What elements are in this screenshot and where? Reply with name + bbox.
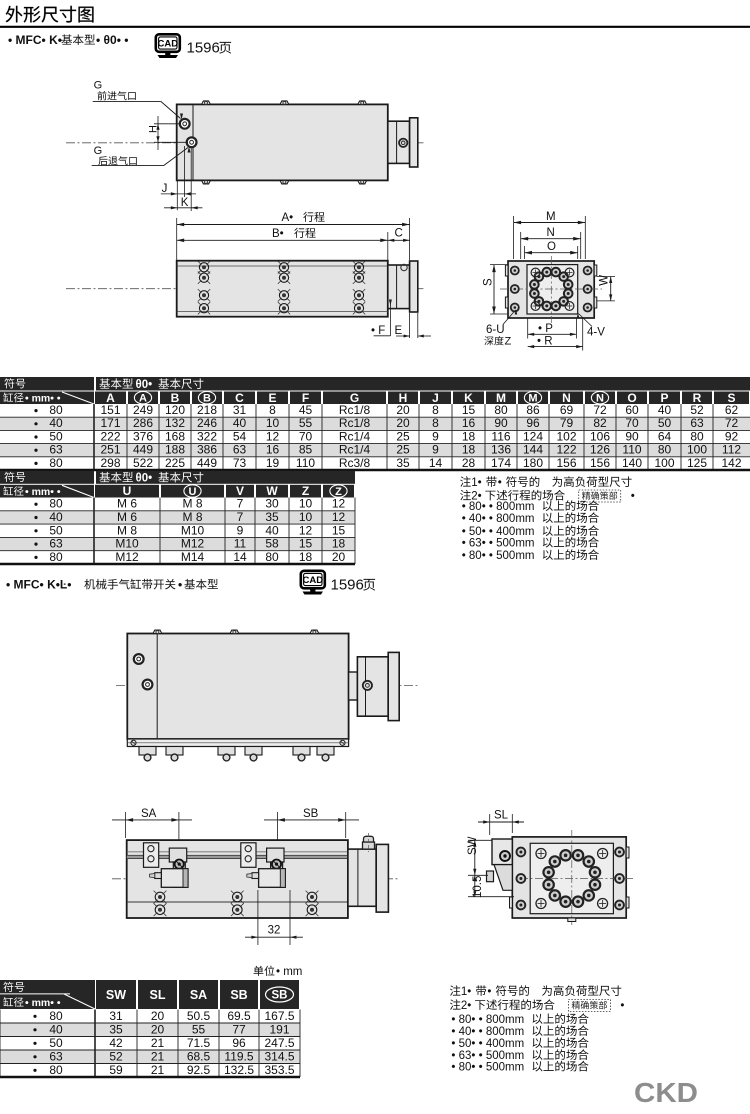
svg-text:J: J <box>162 183 168 195</box>
svg-text:• MFC• K•Ŀ•: • MFC• K•Ŀ• <box>6 578 71 592</box>
svg-text:• 80• • 800mm: • 80• • 800mm <box>451 1014 524 1026</box>
svg-text:449: 449 <box>197 456 217 470</box>
svg-text:80: 80 <box>658 443 672 457</box>
svg-text:18: 18 <box>332 537 346 551</box>
svg-text:• 50• • 400mm: • 50• • 400mm <box>451 1038 524 1050</box>
svg-text:SL: SL <box>150 988 166 1002</box>
svg-text:136: 136 <box>491 443 511 457</box>
svg-text:•: • <box>498 477 502 489</box>
svg-text:25: 25 <box>396 429 410 443</box>
svg-text:M 8: M 8 <box>117 523 137 537</box>
svg-text:20: 20 <box>151 1009 165 1023</box>
svg-text:55: 55 <box>299 416 313 430</box>
svg-text:SL: SL <box>494 810 509 822</box>
svg-text:14: 14 <box>233 550 247 564</box>
svg-text:• P: • P <box>538 323 553 335</box>
svg-text:• MFC• K•: • MFC• K• <box>8 33 62 47</box>
svg-text:64: 64 <box>658 429 672 443</box>
svg-text:102: 102 <box>556 429 576 443</box>
svg-text:132: 132 <box>165 416 185 430</box>
svg-text:• 40• • 800mm: • 40• • 800mm <box>462 513 535 525</box>
svg-text:191: 191 <box>269 1022 289 1036</box>
svg-text:92.5: 92.5 <box>187 1063 211 1077</box>
svg-text:10.5: 10.5 <box>472 876 484 898</box>
svg-text:• 40• • 800mm: • 40• • 800mm <box>451 1026 524 1038</box>
svg-text:116: 116 <box>491 429 510 443</box>
svg-text:• mm: • mm <box>276 966 302 978</box>
svg-text:B•: B• <box>272 228 284 240</box>
svg-text:• 63• • 500mm: • 63• • 500mm <box>462 538 535 550</box>
svg-text:18: 18 <box>462 429 476 443</box>
svg-text:69.5: 69.5 <box>227 1009 251 1023</box>
svg-text:8: 8 <box>269 403 276 417</box>
svg-text:M12: M12 <box>115 550 139 564</box>
svg-text:CKD: CKD <box>634 1077 698 1108</box>
svg-text:SB: SB <box>230 988 247 1002</box>
svg-text:15: 15 <box>332 523 346 537</box>
svg-text:18: 18 <box>299 550 313 564</box>
svg-text:90: 90 <box>625 429 639 443</box>
svg-text:298: 298 <box>100 456 120 470</box>
svg-text:140: 140 <box>622 456 642 470</box>
svg-text:• R: • R <box>537 336 553 348</box>
svg-text:174: 174 <box>491 456 511 470</box>
svg-text:12: 12 <box>266 429 280 443</box>
svg-text:31: 31 <box>233 403 247 417</box>
svg-text:32: 32 <box>268 925 281 937</box>
svg-text:M 6: M 6 <box>117 510 137 524</box>
svg-text:110: 110 <box>296 456 315 470</box>
svg-text:112: 112 <box>722 443 741 457</box>
svg-text:SB: SB <box>272 990 288 1002</box>
svg-text:1596: 1596 <box>331 577 364 594</box>
svg-text:Rc1/4: Rc1/4 <box>339 429 371 443</box>
svg-text:SB: SB <box>303 808 319 820</box>
svg-text:72: 72 <box>725 416 739 430</box>
svg-text:58: 58 <box>265 537 279 551</box>
svg-text:35: 35 <box>109 1022 123 1036</box>
svg-text:CAD: CAD <box>158 39 179 50</box>
svg-text:M 8: M 8 <box>182 497 202 511</box>
svg-text:286: 286 <box>133 416 153 430</box>
svg-text:96: 96 <box>232 1036 246 1050</box>
svg-text:21: 21 <box>151 1049 165 1063</box>
svg-text:12: 12 <box>299 523 313 537</box>
svg-text:50.5: 50.5 <box>187 1009 211 1023</box>
svg-text:θ0•: θ0• <box>136 473 153 485</box>
svg-text:• 80• • 500mm: • 80• • 500mm <box>451 1062 524 1074</box>
svg-text:SA: SA <box>141 808 157 820</box>
svg-text:63: 63 <box>49 537 63 551</box>
svg-text:50: 50 <box>49 429 63 443</box>
svg-text:126: 126 <box>590 443 610 457</box>
svg-text:M 8: M 8 <box>182 510 202 524</box>
svg-text:92: 92 <box>725 429 739 443</box>
svg-text:63: 63 <box>49 1049 63 1063</box>
svg-text:19: 19 <box>266 456 280 470</box>
svg-text:80: 80 <box>49 550 63 564</box>
svg-text:80: 80 <box>49 456 63 470</box>
svg-text:119.5: 119.5 <box>224 1049 253 1063</box>
svg-text:79: 79 <box>560 416 574 430</box>
svg-text:69: 69 <box>560 403 574 417</box>
svg-text:110: 110 <box>622 443 641 457</box>
svg-text:249: 249 <box>133 403 153 417</box>
svg-text:52: 52 <box>690 403 704 417</box>
svg-text:35: 35 <box>396 456 410 470</box>
svg-text:16: 16 <box>462 416 476 430</box>
svg-text:18: 18 <box>462 443 476 457</box>
svg-text:M12: M12 <box>181 537 205 551</box>
svg-text:15: 15 <box>299 537 313 551</box>
svg-text:31: 31 <box>109 1009 123 1023</box>
svg-text:353.5: 353.5 <box>264 1063 294 1077</box>
svg-text:CAD: CAD <box>303 575 324 586</box>
svg-text:θ0•: θ0• <box>136 379 153 391</box>
svg-text:62: 62 <box>725 403 739 417</box>
svg-text:12: 12 <box>332 510 346 524</box>
svg-text:120: 120 <box>165 403 185 417</box>
svg-text:A•: A• <box>282 212 294 224</box>
svg-text:20: 20 <box>396 416 410 430</box>
svg-text:247.5: 247.5 <box>264 1036 294 1050</box>
svg-text:10: 10 <box>299 497 313 511</box>
svg-text:322: 322 <box>197 429 217 443</box>
svg-text:16: 16 <box>266 443 280 457</box>
svg-text:2•: 2• <box>461 1000 471 1012</box>
svg-text:40: 40 <box>265 523 279 537</box>
svg-text:314.5: 314.5 <box>264 1049 294 1063</box>
svg-text:70: 70 <box>625 416 639 430</box>
svg-text:12: 12 <box>332 497 346 511</box>
svg-text:60: 60 <box>625 403 639 417</box>
svg-text:70: 70 <box>299 429 313 443</box>
svg-text:•: • <box>487 986 491 998</box>
svg-text:S: S <box>483 278 495 286</box>
svg-text:45: 45 <box>299 403 313 417</box>
svg-text:M10: M10 <box>181 523 205 537</box>
svg-text:15: 15 <box>462 403 476 417</box>
svg-text:63: 63 <box>690 416 704 430</box>
svg-text:522: 522 <box>133 456 153 470</box>
svg-text:• F: • F <box>371 325 385 337</box>
svg-text:SW: SW <box>467 836 479 855</box>
svg-text:•: • <box>178 578 182 592</box>
svg-text:85: 85 <box>299 443 313 457</box>
svg-text:225: 225 <box>165 456 185 470</box>
svg-text:156: 156 <box>590 456 610 470</box>
svg-text:106: 106 <box>590 429 610 443</box>
svg-text:188: 188 <box>165 443 185 457</box>
svg-text:246: 246 <box>197 416 217 430</box>
svg-text:96: 96 <box>526 416 540 430</box>
svg-text:218: 218 <box>197 403 217 417</box>
svg-text:W: W <box>598 275 610 286</box>
svg-text:SA: SA <box>190 988 207 1002</box>
svg-text:144: 144 <box>523 443 543 457</box>
svg-text:6-U: 6-U <box>486 324 505 336</box>
svg-text:63: 63 <box>233 443 247 457</box>
svg-text:•: • <box>631 491 635 503</box>
svg-text:80: 80 <box>265 550 279 564</box>
svg-text:• 80• • 800mm: • 80• • 800mm <box>462 501 535 513</box>
svg-text:Z: Z <box>505 336 512 348</box>
svg-text:• 80• • 500mm: • 80• • 500mm <box>462 550 535 562</box>
svg-text:151: 151 <box>100 403 120 417</box>
svg-text:124: 124 <box>523 429 543 443</box>
svg-text:20: 20 <box>151 1022 165 1036</box>
svg-text:40: 40 <box>658 403 672 417</box>
svg-text:9: 9 <box>237 523 244 537</box>
svg-text:156: 156 <box>556 456 576 470</box>
svg-text:50: 50 <box>658 416 672 430</box>
svg-text:376: 376 <box>133 429 153 443</box>
svg-text:80: 80 <box>49 403 63 417</box>
svg-text:21: 21 <box>151 1036 165 1050</box>
svg-text:449: 449 <box>133 443 153 457</box>
svg-text:82: 82 <box>593 416 607 430</box>
svg-text:90: 90 <box>494 416 508 430</box>
svg-text:E: E <box>395 325 403 337</box>
svg-text:25: 25 <box>396 443 410 457</box>
svg-text:30: 30 <box>265 497 279 511</box>
svg-text:100: 100 <box>654 456 674 470</box>
svg-text:100: 100 <box>687 443 707 457</box>
svg-text:168: 168 <box>165 429 185 443</box>
svg-text:Rc1/8: Rc1/8 <box>339 403 371 417</box>
svg-text:52: 52 <box>109 1049 123 1063</box>
svg-text:180: 180 <box>523 456 543 470</box>
svg-text:54: 54 <box>233 429 247 443</box>
svg-text:80: 80 <box>49 1009 63 1023</box>
svg-text:167.5: 167.5 <box>264 1009 294 1023</box>
svg-text:• 63• • 500mm: • 63• • 500mm <box>451 1050 524 1062</box>
svg-text:C: C <box>395 228 403 240</box>
svg-text:42: 42 <box>109 1036 123 1050</box>
svg-text:171: 171 <box>100 416 120 430</box>
svg-text:M14: M14 <box>181 550 205 564</box>
svg-text:80: 80 <box>494 403 508 417</box>
svg-text:35: 35 <box>265 510 279 524</box>
svg-text:125: 125 <box>687 456 707 470</box>
svg-text:142: 142 <box>721 456 741 470</box>
svg-text:1596: 1596 <box>187 40 220 57</box>
svg-text:28: 28 <box>462 456 476 470</box>
svg-text:• mm• •: • mm• • <box>25 997 61 1009</box>
svg-text:50: 50 <box>49 1036 63 1050</box>
svg-text:M10: M10 <box>115 537 139 551</box>
svg-text:251: 251 <box>100 443 120 457</box>
svg-text:59: 59 <box>109 1063 123 1077</box>
svg-text:40: 40 <box>49 1022 63 1036</box>
svg-text:K: K <box>181 197 189 209</box>
svg-text:222: 222 <box>100 429 120 443</box>
svg-text:80: 80 <box>49 1063 63 1077</box>
svg-text:9: 9 <box>432 443 439 457</box>
svg-text:20: 20 <box>332 550 346 564</box>
svg-text:40: 40 <box>49 510 63 524</box>
svg-text:14: 14 <box>429 456 443 470</box>
svg-text:M: M <box>546 211 556 223</box>
svg-text:50: 50 <box>49 523 63 537</box>
svg-text:86: 86 <box>526 403 540 417</box>
svg-text:SW: SW <box>106 988 126 1002</box>
svg-text:1•: 1• <box>461 986 471 998</box>
svg-text:11: 11 <box>234 537 247 551</box>
svg-text:H: H <box>148 125 160 133</box>
svg-text:77: 77 <box>232 1022 246 1036</box>
svg-text:132.5: 132.5 <box>224 1063 254 1077</box>
svg-text:• 50• • 400mm: • 50• • 400mm <box>462 526 535 538</box>
svg-text:73: 73 <box>233 456 247 470</box>
svg-text:•: • <box>620 1000 624 1012</box>
svg-text:• θ0• •: • θ0• • <box>96 33 128 47</box>
svg-text:80: 80 <box>49 497 63 511</box>
svg-text:55: 55 <box>192 1022 206 1036</box>
svg-text:72: 72 <box>593 403 607 417</box>
svg-text:20: 20 <box>396 403 410 417</box>
svg-text:M 6: M 6 <box>117 497 137 511</box>
svg-text:71.5: 71.5 <box>187 1036 211 1050</box>
svg-text:7: 7 <box>237 497 244 511</box>
svg-text:O: O <box>547 241 556 253</box>
svg-text:63: 63 <box>49 443 63 457</box>
svg-text:N: N <box>547 227 555 239</box>
svg-text:40: 40 <box>233 416 247 430</box>
svg-text:80: 80 <box>690 429 704 443</box>
svg-text:122: 122 <box>556 443 576 457</box>
svg-text:Rc1/8: Rc1/8 <box>339 416 371 430</box>
svg-text:68.5: 68.5 <box>187 1049 211 1063</box>
svg-text:8: 8 <box>432 403 439 417</box>
svg-text:9: 9 <box>432 429 439 443</box>
svg-text:21: 21 <box>151 1063 165 1077</box>
svg-text:8: 8 <box>432 416 439 430</box>
svg-text:Rc3/8: Rc3/8 <box>339 456 371 470</box>
svg-text:7: 7 <box>237 510 244 524</box>
svg-text:40: 40 <box>49 416 63 430</box>
svg-text:G: G <box>94 80 103 92</box>
svg-text:10: 10 <box>299 510 313 524</box>
svg-text:10: 10 <box>266 416 280 430</box>
svg-text:4-V: 4-V <box>587 327 605 339</box>
svg-text:Rc1/4: Rc1/4 <box>339 443 371 457</box>
svg-text:1•: 1• <box>471 477 481 489</box>
svg-text:G: G <box>94 145 103 157</box>
svg-text:386: 386 <box>197 443 217 457</box>
